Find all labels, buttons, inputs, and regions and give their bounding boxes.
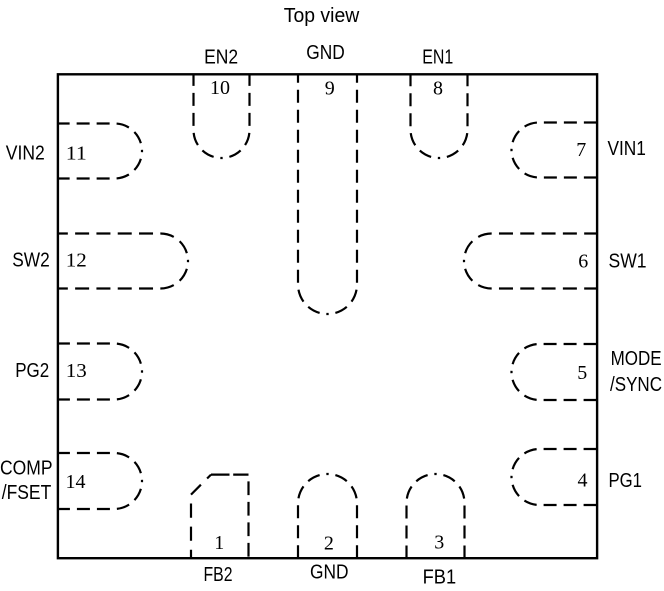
svg-text:3: 3 xyxy=(434,532,444,554)
svg-text:EN1: EN1 xyxy=(422,46,453,68)
svg-text:2: 2 xyxy=(324,532,334,554)
svg-text:8: 8 xyxy=(433,77,443,99)
svg-text:/FSET: /FSET xyxy=(2,482,52,504)
svg-text:6: 6 xyxy=(578,250,588,272)
svg-text:EN2: EN2 xyxy=(204,47,238,69)
svg-text:13: 13 xyxy=(66,360,87,382)
svg-text:PG2: PG2 xyxy=(15,360,49,382)
svg-text:1: 1 xyxy=(214,532,224,554)
svg-text:SW1: SW1 xyxy=(609,250,647,272)
svg-text:FB2: FB2 xyxy=(204,564,233,586)
svg-text:PG1: PG1 xyxy=(608,470,642,492)
svg-text:12: 12 xyxy=(66,250,87,272)
svg-text:GND: GND xyxy=(306,42,345,64)
svg-text:9: 9 xyxy=(325,78,335,100)
svg-text:FB1: FB1 xyxy=(423,566,457,588)
svg-text:MODE: MODE xyxy=(611,348,662,370)
svg-text:7: 7 xyxy=(576,139,586,161)
svg-text:SW2: SW2 xyxy=(12,250,50,272)
svg-text:10: 10 xyxy=(210,77,230,99)
svg-text:COMP: COMP xyxy=(0,457,53,479)
svg-text:14: 14 xyxy=(66,471,86,493)
svg-text:GND: GND xyxy=(310,562,349,584)
svg-text:5: 5 xyxy=(577,362,587,384)
svg-text:11: 11 xyxy=(66,142,87,164)
svg-text:VIN1: VIN1 xyxy=(607,138,646,160)
svg-text:Top view: Top view xyxy=(284,5,360,27)
svg-text:/SYNC: /SYNC xyxy=(610,374,662,396)
svg-text:VIN2: VIN2 xyxy=(6,143,45,165)
svg-text:4: 4 xyxy=(578,470,588,492)
